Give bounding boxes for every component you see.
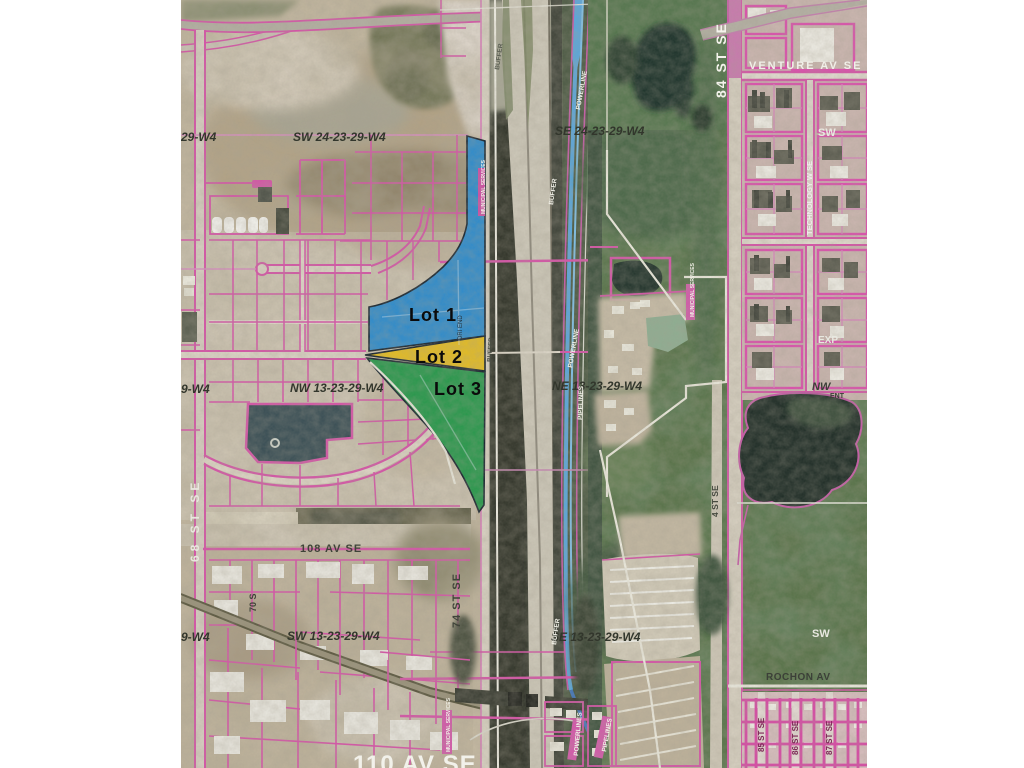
svg-text:70 S: 70 S xyxy=(248,593,258,612)
svg-text:SW 13-23-29-W4: SW 13-23-29-W4 xyxy=(287,629,380,643)
svg-text:110 AV SE: 110 AV SE xyxy=(353,751,477,768)
svg-text:ENT: ENT xyxy=(830,393,845,400)
svg-text:85 ST SE: 85 ST SE xyxy=(757,717,766,752)
svg-text:VENTURE AV SE: VENTURE AV SE xyxy=(749,60,862,72)
svg-text:SE 24-23-29-W4: SE 24-23-29-W4 xyxy=(555,124,645,138)
svg-text:SE 13-23-29-W4: SE 13-23-29-W4 xyxy=(551,630,641,644)
svg-text:Lot 1: Lot 1 xyxy=(409,305,457,325)
svg-text:NE 13-23-29-W4: NE 13-23-29-W4 xyxy=(552,379,642,393)
svg-text:NW 13-23-29-W4: NW 13-23-29-W4 xyxy=(290,381,384,395)
svg-text:108 AV SE: 108 AV SE xyxy=(300,543,362,555)
svg-text:68 ST SE: 68 ST SE xyxy=(188,479,202,562)
svg-text:DRI END: DRI END xyxy=(458,315,464,340)
svg-text:9-W4: 9-W4 xyxy=(181,630,210,644)
svg-text:Lot 2: Lot 2 xyxy=(415,347,463,367)
svg-text:ROCHON AV: ROCHON AV xyxy=(766,672,831,683)
svg-text:SW 24-23-29-W4: SW 24-23-29-W4 xyxy=(293,130,386,144)
svg-text:4 ST SE: 4 ST SE xyxy=(710,485,720,517)
svg-text:MUNICIPAL SERVICES: MUNICIPAL SERVICES xyxy=(690,262,696,317)
svg-text:MUNICIPAL SERVICES: MUNICIPAL SERVICES xyxy=(481,159,487,214)
svg-text:SW: SW xyxy=(818,127,836,139)
svg-text:86 ST SE: 86 ST SE xyxy=(791,720,800,755)
svg-text:74 ST SE: 74 ST SE xyxy=(451,573,463,628)
svg-text:PIPELINES: PIPELINES xyxy=(577,385,585,420)
svg-text:84 ST SE: 84 ST SE xyxy=(713,22,729,98)
svg-text:TECHNOLOGY W SE: TECHNOLOGY W SE xyxy=(805,161,814,235)
svg-text:SW: SW xyxy=(812,628,830,640)
svg-text:NW: NW xyxy=(812,381,832,393)
svg-text:9-W4: 9-W4 xyxy=(181,382,210,396)
svg-text:Lot 3: Lot 3 xyxy=(434,379,482,399)
svg-text:EXP: EXP xyxy=(818,335,838,346)
svg-text:29-W4: 29-W4 xyxy=(180,130,217,144)
svg-text:MUNICIPAL SERVICES: MUNICIPAL SERVICES xyxy=(446,697,452,752)
svg-text:87 ST SE: 87 ST SE xyxy=(825,720,834,755)
